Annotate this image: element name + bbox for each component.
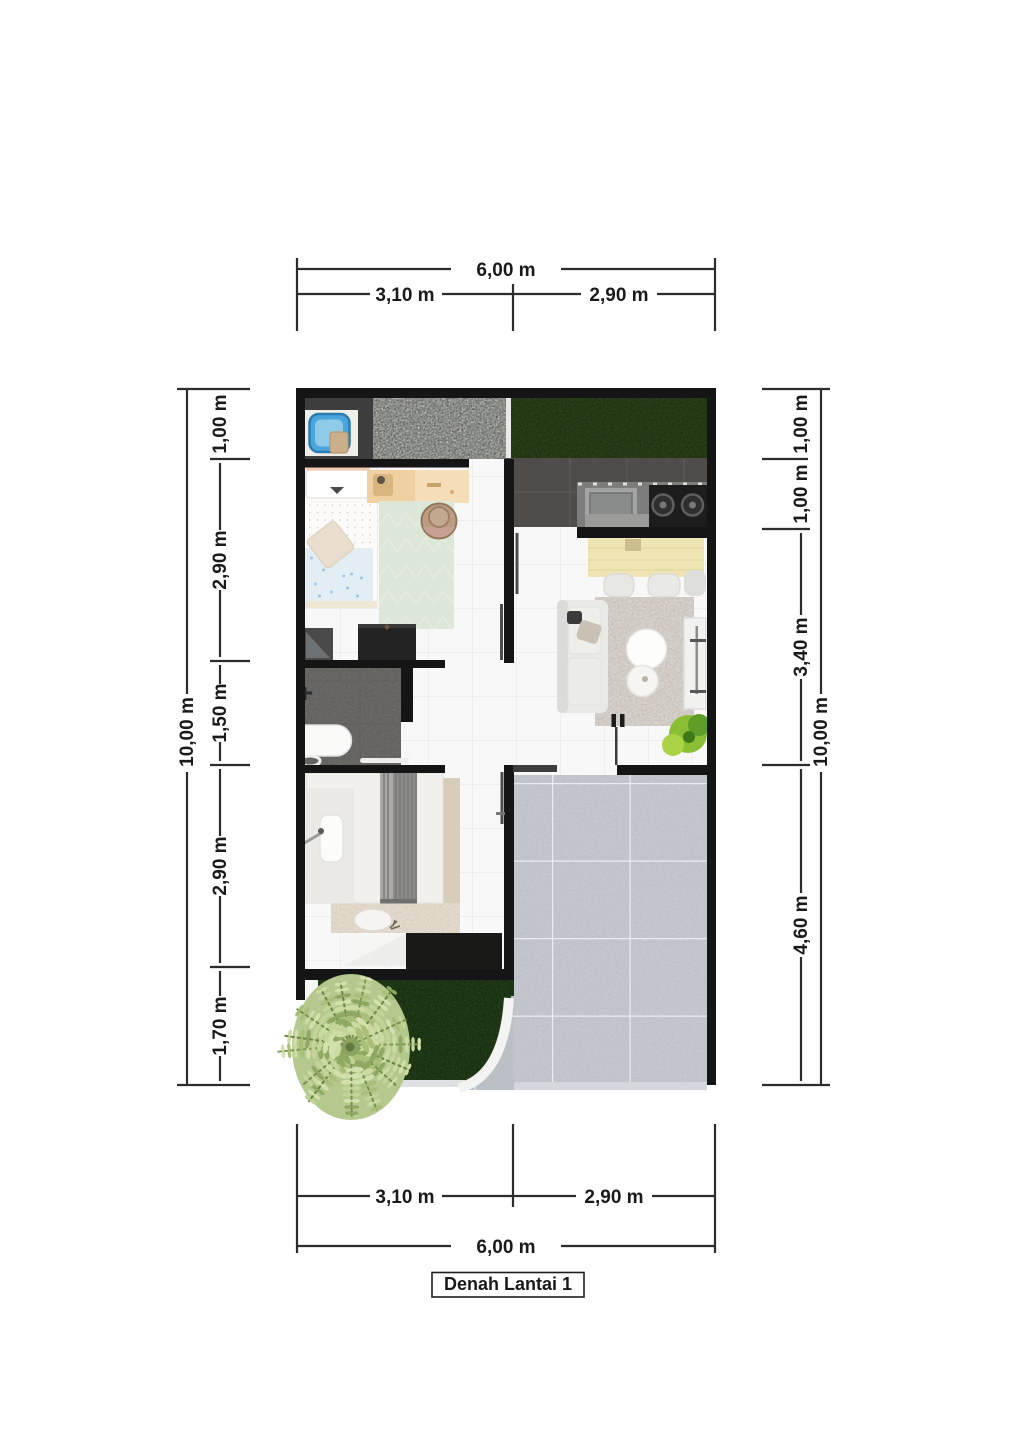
svg-text:1,00 m: 1,00 m	[791, 394, 812, 453]
svg-text:10,00 m: 10,00 m	[177, 697, 198, 767]
svg-text:3,10 m: 3,10 m	[375, 1187, 434, 1208]
svg-text:3,10 m: 3,10 m	[375, 285, 434, 306]
svg-text:2,90 m: 2,90 m	[210, 530, 231, 589]
svg-text:1,70 m: 1,70 m	[210, 996, 231, 1055]
svg-text:1,00 m: 1,00 m	[210, 394, 231, 453]
svg-text:2,90 m: 2,90 m	[584, 1187, 643, 1208]
svg-text:1,50 m: 1,50 m	[210, 683, 231, 742]
svg-text:10,00 m: 10,00 m	[811, 697, 832, 767]
svg-text:6,00 m: 6,00 m	[476, 1237, 535, 1258]
svg-text:6,00 m: 6,00 m	[476, 260, 535, 281]
svg-text:4,60 m: 4,60 m	[791, 895, 812, 954]
svg-text:Denah Lantai 1: Denah Lantai 1	[444, 1274, 572, 1294]
svg-text:3,40 m: 3,40 m	[791, 617, 812, 676]
svg-text:2,90 m: 2,90 m	[210, 836, 231, 895]
svg-text:2,90 m: 2,90 m	[589, 285, 648, 306]
svg-text:1,00 m: 1,00 m	[791, 464, 812, 523]
